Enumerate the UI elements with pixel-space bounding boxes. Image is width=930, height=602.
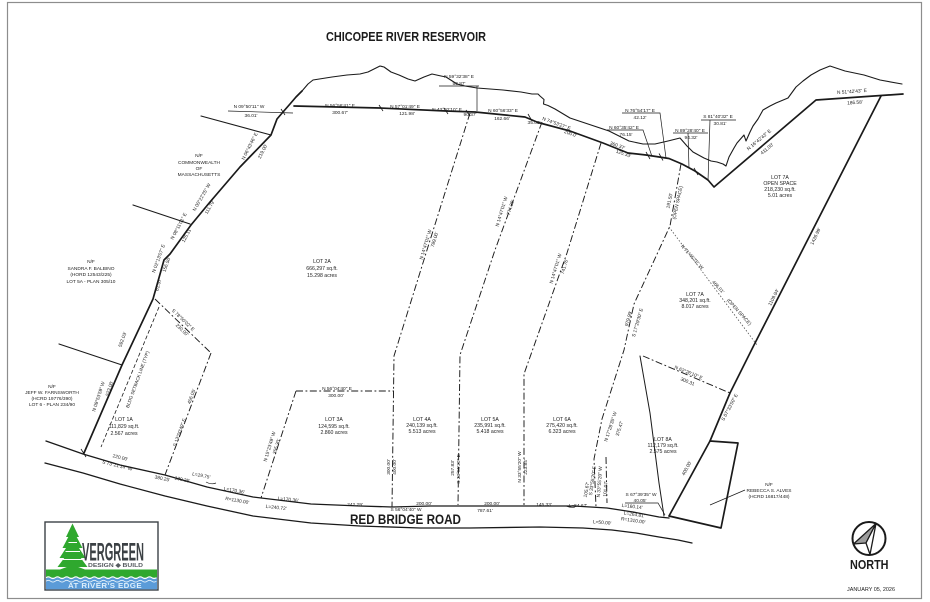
svg-text:JANUARY 05, 2026: JANUARY 05, 2026 [847,587,895,593]
svg-text:S 56°04'40" W: S 56°04'40" W [391,507,422,513]
svg-text:N 09°50'11" W: N 09°50'11" W [234,104,265,110]
svg-text:30.81': 30.81' [714,121,727,127]
svg-text:5.418 acres: 5.418 acres [476,429,504,435]
svg-text:JEFF W. FARNSWORTH: JEFF W. FARNSWORTH [25,390,79,396]
svg-text:200.00': 200.00' [484,501,500,507]
svg-text:N 33°55'20" W: N 33°55'20" W [517,451,523,483]
svg-text:42.12': 42.12' [634,115,647,121]
svg-text:186.58': 186.58' [847,99,863,106]
svg-text:N 60°35'42" E: N 60°35'42" E [609,125,639,131]
svg-text:SANDRA F. BALBINO: SANDRA F. BALBINO [68,266,115,272]
svg-text:15.298 acres: 15.298 acres [307,273,337,279]
svg-text:N/F: N/F [48,384,56,390]
svg-text:76.15': 76.15' [620,132,633,138]
svg-text:666,297 sq.ft.: 666,297 sq.ft. [306,266,337,272]
svg-text:RED BRIDGE ROAD: RED BRIDGE ROAD [350,512,461,527]
svg-text:5.01 acres: 5.01 acres [768,193,793,199]
svg-text:N 43°02'10" E: N 43°02'10" E [432,107,462,113]
svg-text:40.05': 40.05' [634,498,647,504]
svg-text:N 57°01'49" E: N 57°01'49" E [390,104,420,110]
svg-text:101.07': 101.07' [602,481,609,497]
svg-text:200.00': 200.00' [416,501,432,507]
svg-text:L=54.67': L=54.67' [569,503,587,509]
svg-text:N/F: N/F [87,259,95,265]
svg-text:111,829 sq.ft.: 111,829 sq.ft. [109,424,140,430]
svg-text:N/F: N/F [765,482,773,488]
svg-text:LOT 3A: LOT 3A [325,417,343,423]
svg-text:8.017 acres: 8.017 acres [681,304,709,310]
svg-text:162.66': 162.66' [494,116,510,122]
svg-text:787.61': 787.61' [477,508,493,514]
svg-text:50.87': 50.87' [453,81,466,87]
svg-text:5.513 acres: 5.513 acres [408,429,436,435]
svg-text:OF: OF [196,166,203,172]
svg-text:N 56°56'41" E: N 56°56'41" E [325,103,355,109]
svg-text:REBECCA S. ALVES: REBECCA S. ALVES [747,488,792,494]
svg-text:6.323 acres: 6.323 acres [548,429,576,435]
svg-text:242.29': 242.29' [347,502,363,508]
svg-text:90.37': 90.37' [464,112,477,118]
svg-text:400.00': 400.00' [392,459,398,475]
svg-text:2.567 acres: 2.567 acres [110,431,138,437]
svg-text:145.33': 145.33' [536,502,552,508]
svg-text:(HCRD 19776/390): (HCRD 19776/390) [31,396,72,402]
svg-text:121.98': 121.98' [399,111,415,117]
svg-text:MASSACHUSETTS: MASSACHUSETTS [178,172,221,178]
svg-text:2.575 acres: 2.575 acres [649,449,677,455]
svg-text:300.00': 300.00' [328,393,344,399]
svg-text:NORTH: NORTH [850,557,889,572]
svg-text:94.32': 94.32' [685,135,698,141]
svg-text:N 56°04'40" E: N 56°04'40" E [322,386,352,392]
svg-text:LOT 5A - PLAN 305/10: LOT 5A - PLAN 305/10 [67,279,116,285]
svg-text:LOT 2A: LOT 2A [313,259,331,265]
svg-text:DESIGN ◆ BUILD: DESIGN ◆ BUILD [88,562,143,569]
svg-text:AT RIVER'S EDGE: AT RIVER'S EDGE [68,581,142,590]
svg-text:LOT 6 - PLAN 234/90: LOT 6 - PLAN 234/90 [29,402,75,408]
svg-text:N 76°54'17" E: N 76°54'17" E [625,108,655,114]
svg-text:(HORD 12543/225): (HORD 12543/225) [70,272,112,278]
svg-text:CHICOPEE RIVER RESERVOIR: CHICOPEE RIVER RESERVOIR [326,29,487,44]
svg-text:257.83': 257.83' [450,460,456,476]
svg-text:N 60°56'33" E: N 60°56'33" E [488,108,518,114]
svg-text:COMMONWEALTH: COMMONWEALTH [178,160,221,166]
svg-text:36.01': 36.01' [245,113,258,119]
svg-text:2.860 acres: 2.860 acres [320,430,348,436]
svg-text:300.00': 300.00' [386,459,392,475]
svg-text:300.67': 300.67' [332,110,348,116]
svg-text:S 33°55'20" E: S 33°55'20" E [456,454,462,484]
svg-text:S 81°40'32" E: S 81°40'32" E [703,114,733,120]
svg-text:S 67°39'35" W: S 67°39'35" W [626,492,657,498]
svg-text:(HCRD 16817/448): (HCRD 16817/448) [748,494,789,500]
svg-text:223.84': 223.84' [523,459,529,475]
svg-text:LOT 1A: LOT 1A [115,417,133,423]
svg-text:N 89°28'40" E: N 89°28'40" E [675,128,705,134]
svg-text:N/F: N/F [195,153,203,159]
svg-text:N 59°32'38" E: N 59°32'38" E [444,74,474,80]
svg-text:35.00': 35.00' [528,120,541,126]
